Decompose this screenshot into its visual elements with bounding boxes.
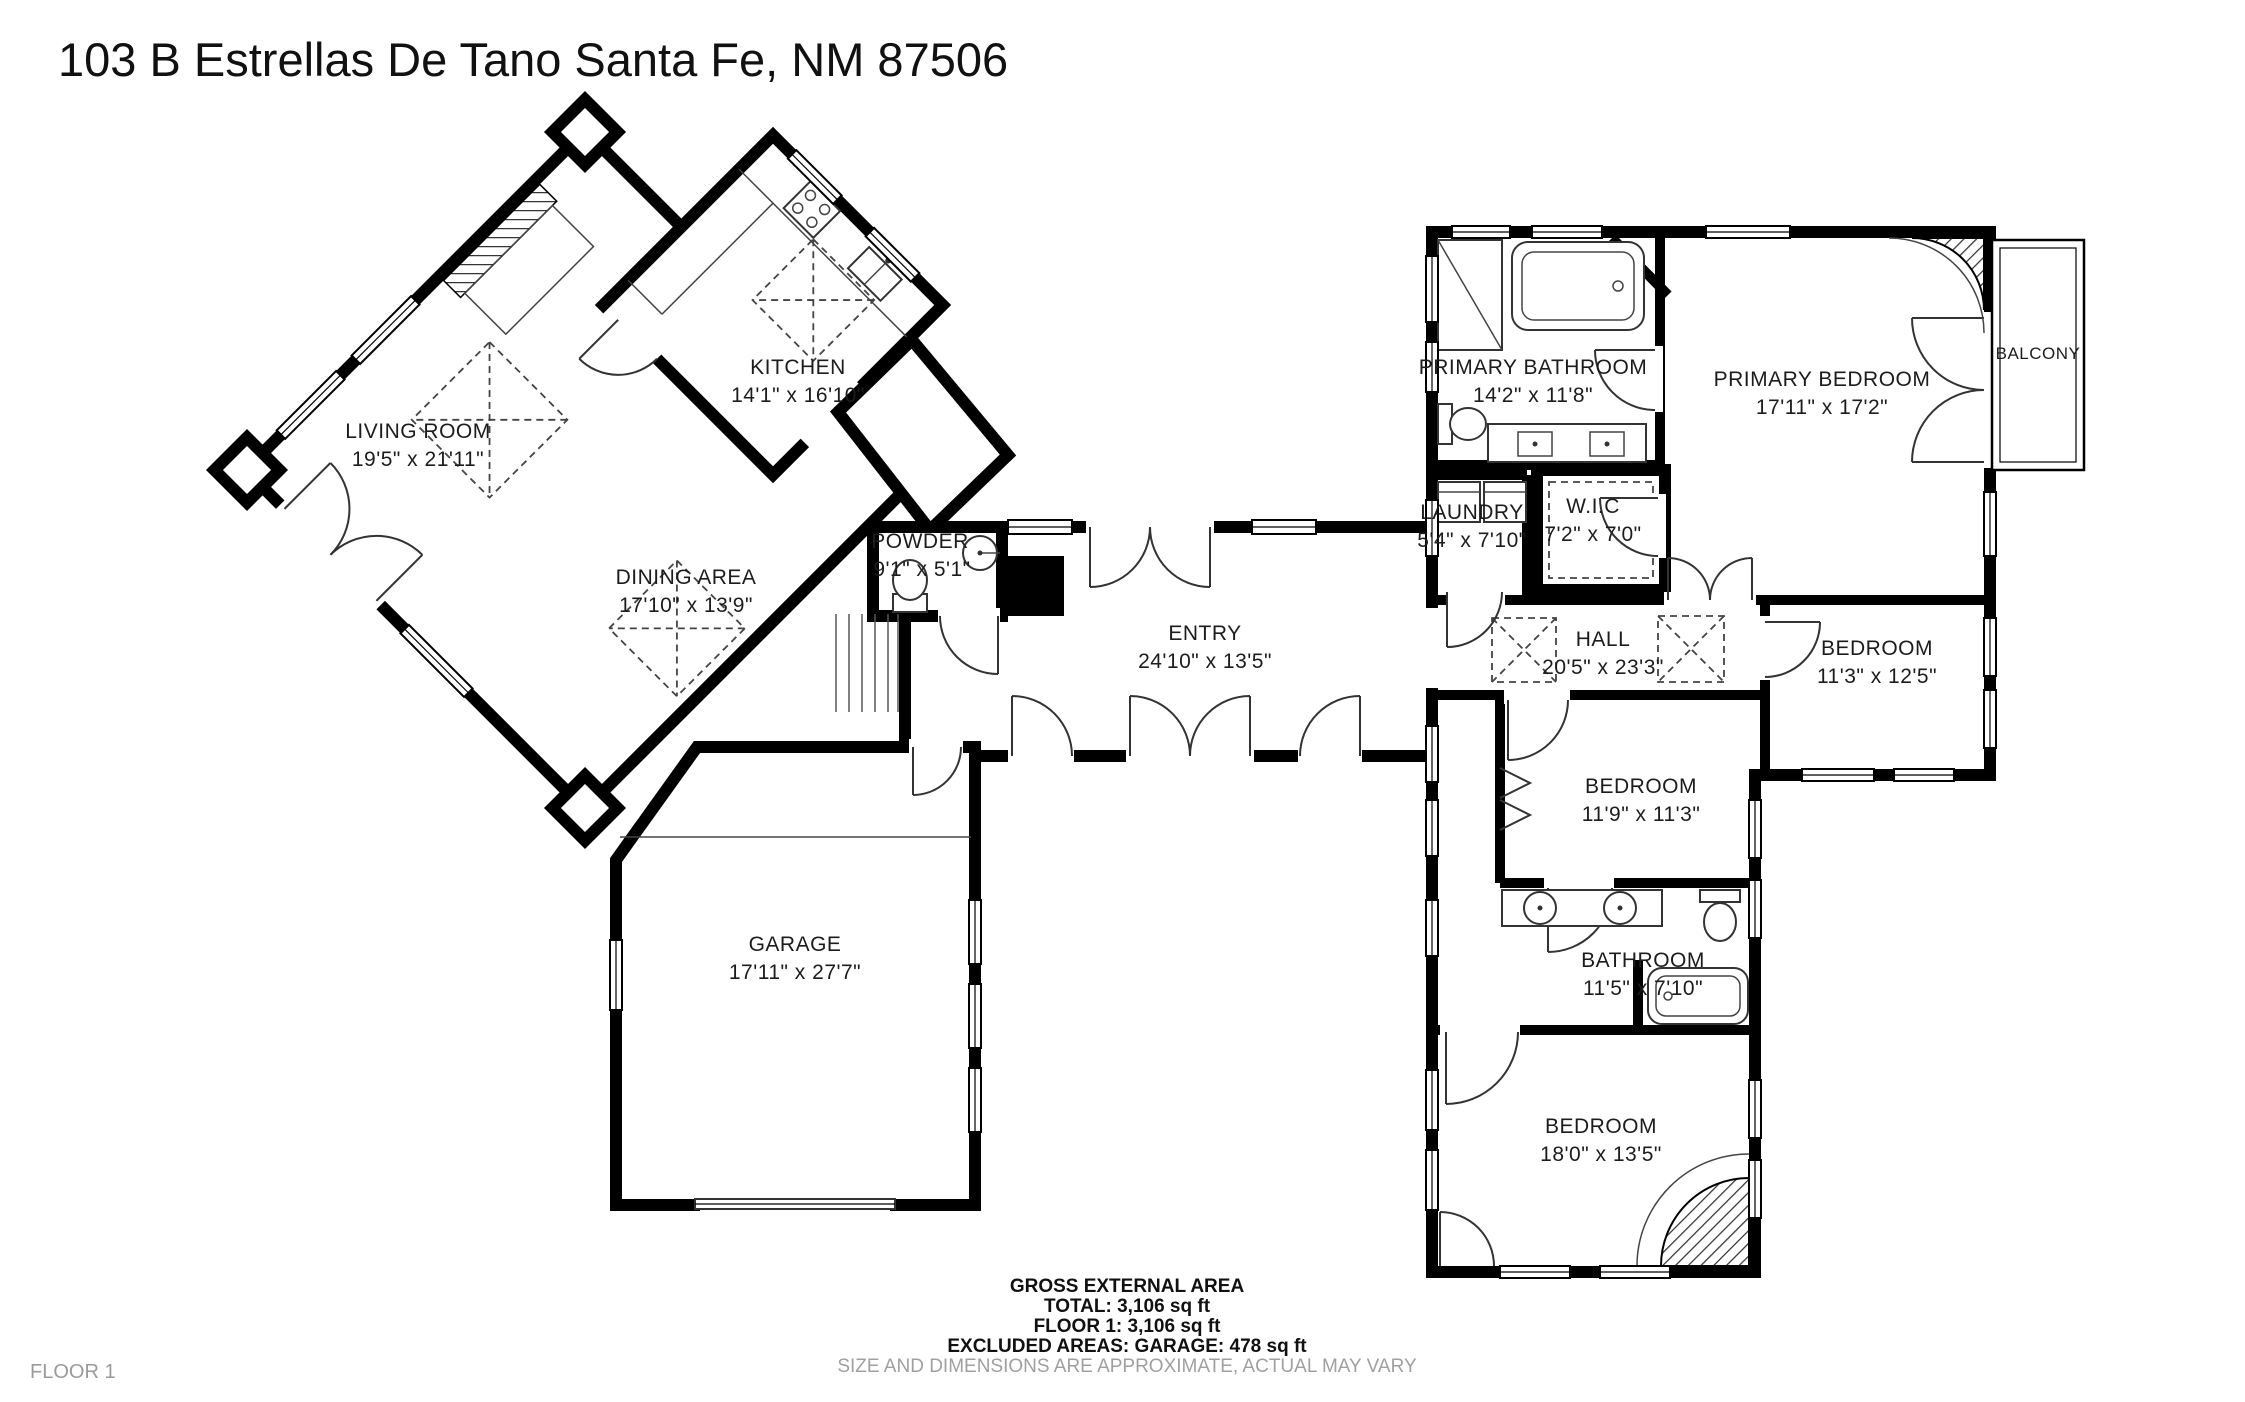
room-dims-primary-bedroom: 17'11" x 17'2"	[1756, 396, 1888, 419]
room-label-kitchen: KITCHEN	[750, 356, 846, 379]
floor-plan-drawing: LIVING ROOM 19'5" x 21'11" KITCHEN 14'1"…	[0, 0, 2245, 1402]
room-label-bathroom: BATHROOM	[1581, 949, 1705, 972]
room-label-bedroom-bottom: BEDROOM	[1545, 1115, 1657, 1138]
entry-block	[836, 519, 1442, 764]
room-dims-bedroom-right: 11'3" x 12'5"	[1817, 665, 1937, 688]
room-dims-living-room: 19'5" x 21'11"	[352, 448, 484, 471]
room-dims-bedroom-middle: 11'9" x 11'3"	[1582, 803, 1701, 826]
room-dims-powder: 9'1" x 5'1"	[873, 558, 970, 581]
room-label-bedroom-middle: BEDROOM	[1585, 775, 1697, 798]
footer-disclaimer: SIZE AND DIMENSIONS ARE APPROXIMATE, ACT…	[837, 1356, 1417, 1377]
stairs	[836, 614, 898, 712]
footer-area-summary: GROSS EXTERNAL AREA TOTAL: 3,106 sq ft F…	[837, 1276, 1417, 1377]
room-label-primary-bedroom: PRIMARY BEDROOM	[1714, 368, 1931, 391]
room-label-balcony: BALCONY	[1996, 344, 2081, 363]
page-title: 103 B Estrellas De Tano Santa Fe, NM 875…	[58, 33, 1008, 86]
room-label-dining-area: DINING AREA	[616, 566, 757, 589]
room-label-wic: W.I.C	[1566, 495, 1620, 518]
room-dims-entry: 24'10" x 13'5"	[1138, 650, 1272, 673]
footer-total: TOTAL: 3,106 sq ft	[1044, 1296, 1211, 1317]
room-dims-garage: 17'11" x 27'7"	[729, 961, 861, 984]
room-dims-bedroom-bottom: 18'0" x 13'5"	[1540, 1143, 1662, 1166]
room-dims-wic: 7'2" x 7'0"	[1544, 523, 1641, 546]
room-dims-laundry: 5'4" x 7'10"	[1417, 529, 1527, 552]
footer-excluded: EXCLUDED AREAS: GARAGE: 478 sq ft	[947, 1336, 1307, 1357]
floor-plan-page: LIVING ROOM 19'5" x 21'11" KITCHEN 14'1"…	[0, 0, 2245, 1402]
room-dims-dining-area: 17'10" x 13'9"	[619, 594, 753, 617]
footer-floor: FLOOR 1: 3,106 sq ft	[1034, 1316, 1222, 1337]
room-label-entry: ENTRY	[1168, 622, 1241, 645]
floor-label: FLOOR 1	[30, 1361, 116, 1383]
room-label-primary-bathroom: PRIMARY BATHROOM	[1419, 356, 1648, 379]
footer-heading: GROSS EXTERNAL AREA	[1010, 1276, 1245, 1297]
room-dims-kitchen: 14'1" x 16'10"	[731, 384, 865, 407]
room-label-bedroom-right: BEDROOM	[1821, 637, 1933, 660]
room-dims-hall: 20'5" x 23'3"	[1542, 656, 1664, 679]
room-dims-bathroom: 11'5" x 7'10"	[1583, 977, 1703, 1000]
room-label-powder: POWDER	[871, 530, 969, 553]
room-dims-primary-bathroom: 14'2" x 11'8"	[1473, 384, 1593, 407]
room-label-hall: HALL	[1576, 628, 1631, 651]
room-label-living-room: LIVING ROOM	[345, 420, 491, 443]
room-label-garage: GARAGE	[749, 933, 842, 956]
room-label-laundry: LAUNDRY	[1420, 501, 1523, 524]
